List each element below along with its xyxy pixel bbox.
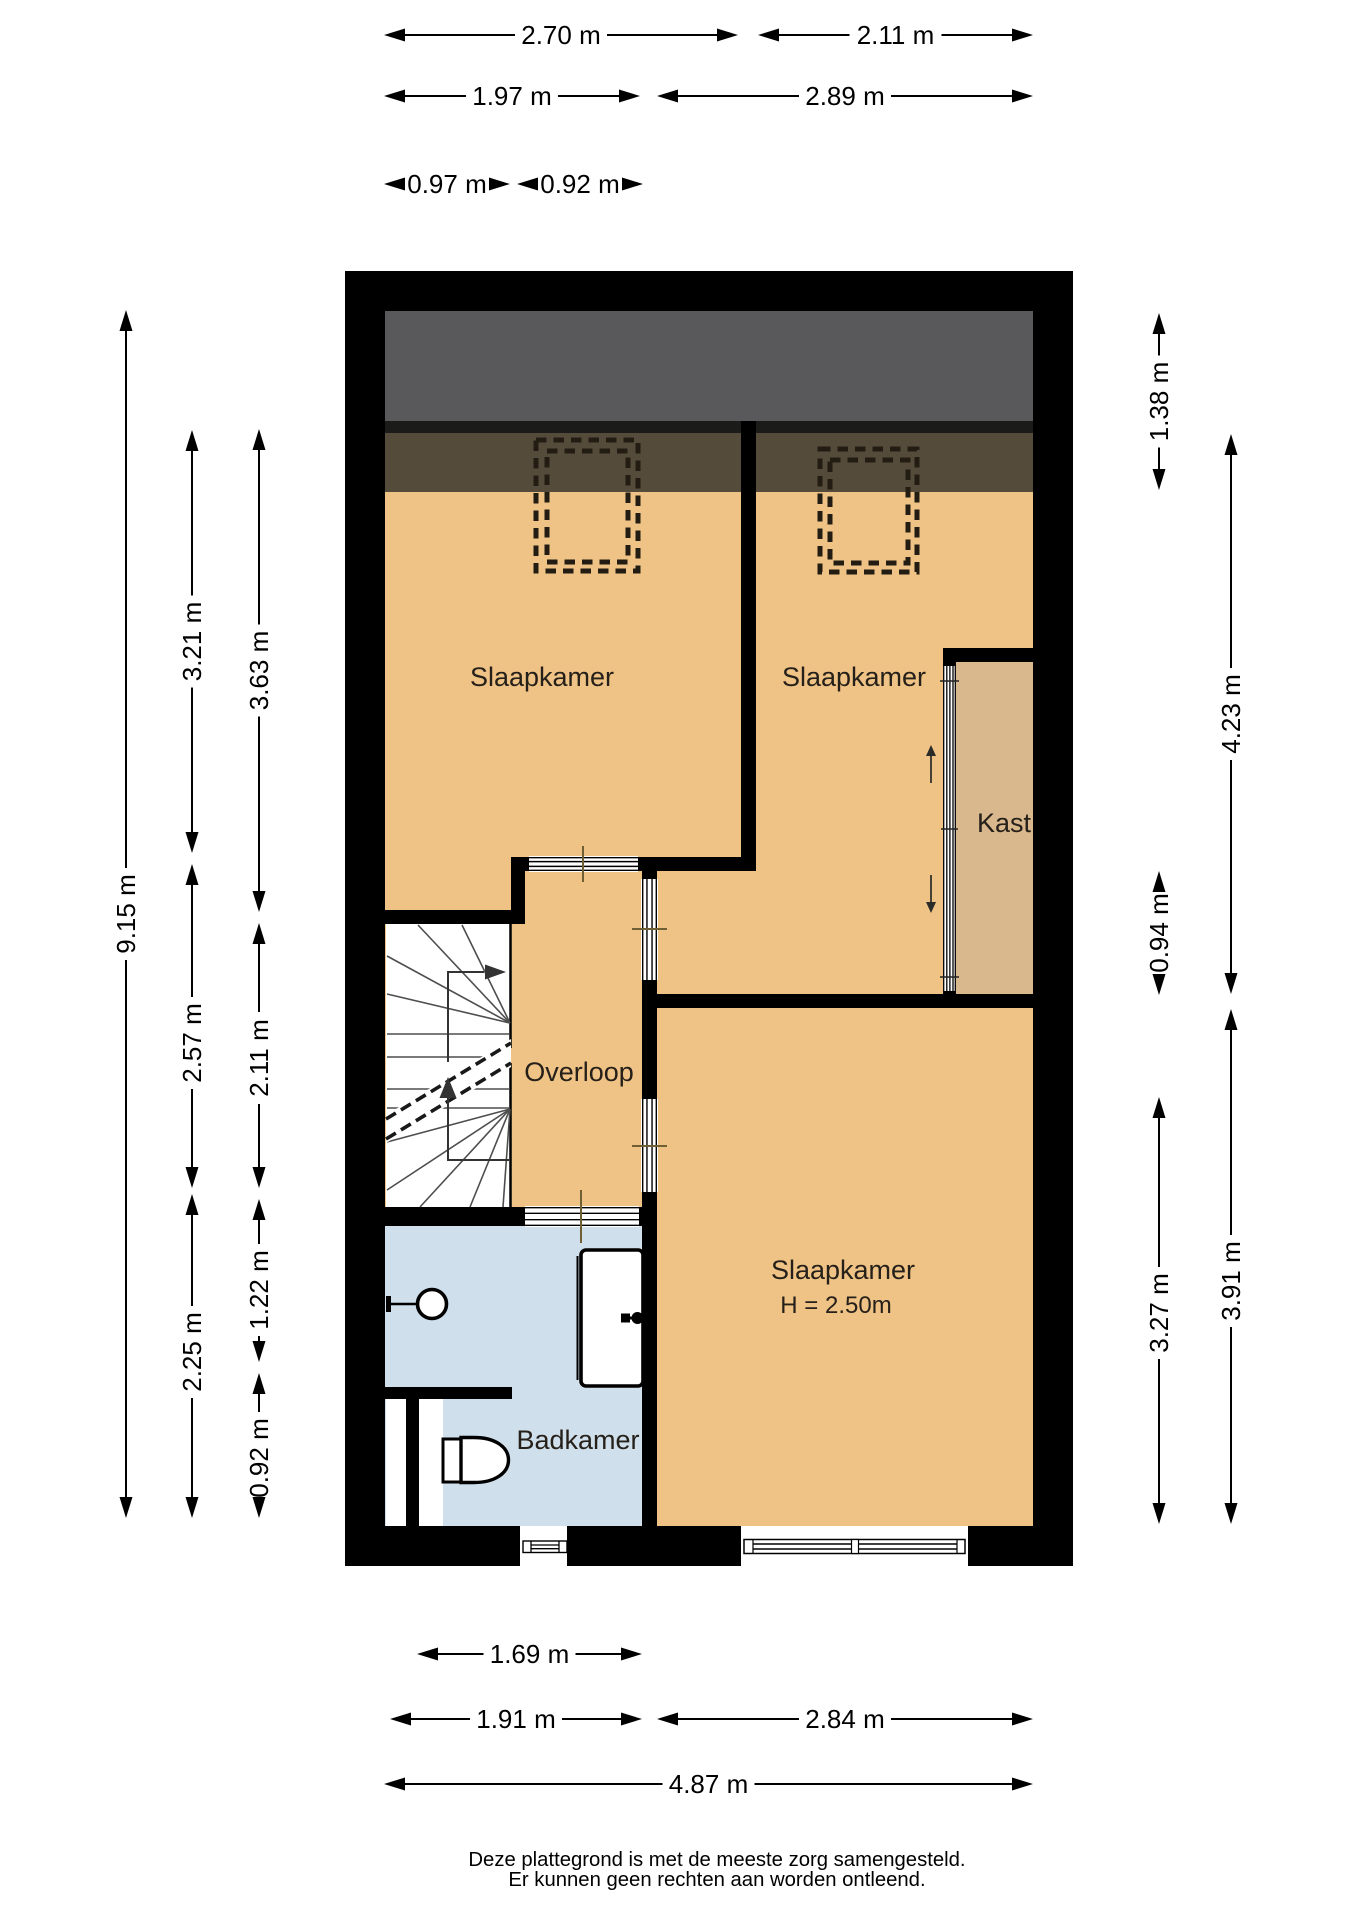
svg-text:Kast: Kast [977, 808, 1032, 838]
svg-text:2.57 m: 2.57 m [177, 1003, 207, 1083]
svg-text:Badkamer: Badkamer [516, 1425, 639, 1455]
svg-text:1.91 m: 1.91 m [476, 1704, 556, 1734]
svg-text:0.92 m: 0.92 m [540, 169, 620, 199]
svg-text:3.27 m: 3.27 m [1144, 1273, 1174, 1353]
svg-text:Slaapkamer: Slaapkamer [771, 1255, 915, 1285]
svg-text:0.92 m: 0.92 m [244, 1418, 274, 1498]
svg-text:0.94 m: 0.94 m [1144, 893, 1174, 973]
svg-text:2.70 m: 2.70 m [521, 20, 601, 50]
svg-text:Slaapkamer: Slaapkamer [470, 662, 614, 692]
svg-text:9.15 m: 9.15 m [111, 874, 141, 954]
svg-text:4.87 m: 4.87 m [669, 1769, 749, 1799]
svg-text:2.25 m: 2.25 m [177, 1312, 207, 1392]
svg-text:Slaapkamer: Slaapkamer [782, 662, 926, 692]
svg-text:Deze plattegrond is met de mee: Deze plattegrond is met de meeste zorg s… [468, 1849, 965, 1871]
svg-text:3.21 m: 3.21 m [177, 602, 207, 682]
svg-text:3.91 m: 3.91 m [1216, 1241, 1246, 1321]
svg-text:2.11 m: 2.11 m [244, 1019, 274, 1097]
svg-text:1.69 m: 1.69 m [490, 1639, 570, 1669]
svg-text:2.84 m: 2.84 m [805, 1704, 885, 1734]
svg-text:H = 2.50m: H = 2.50m [780, 1292, 891, 1319]
svg-text:2.11 m: 2.11 m [857, 20, 935, 50]
svg-text:2.89 m: 2.89 m [805, 81, 885, 111]
svg-text:0.97 m: 0.97 m [407, 169, 487, 199]
svg-text:3.63 m: 3.63 m [244, 631, 274, 711]
svg-text:1.22 m: 1.22 m [244, 1250, 274, 1330]
svg-text:Er kunnen geen rechten aan wor: Er kunnen geen rechten aan worden ontlee… [508, 1869, 925, 1891]
svg-text:1.38 m: 1.38 m [1144, 362, 1174, 442]
svg-text:4.23 m: 4.23 m [1216, 674, 1246, 754]
svg-text:1.97 m: 1.97 m [472, 81, 552, 111]
svg-text:Overloop: Overloop [524, 1057, 634, 1087]
